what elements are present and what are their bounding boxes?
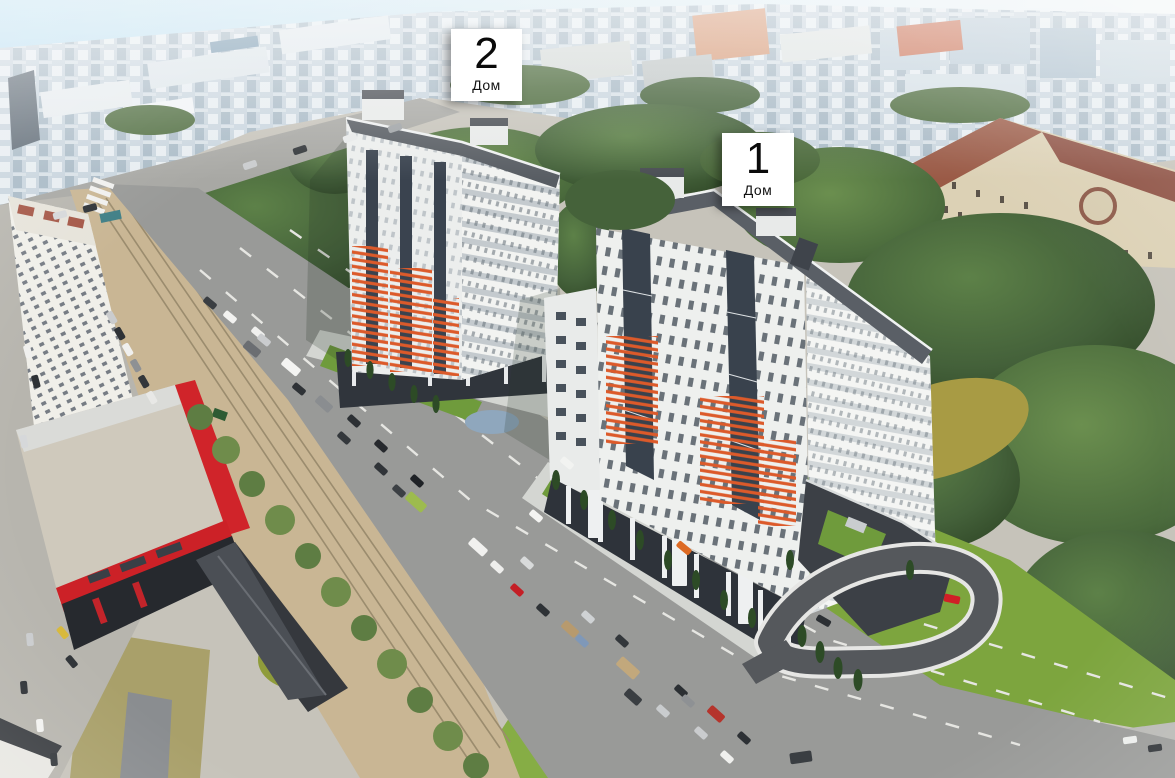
aerial-rendering: 2 Дом 1 Дом — [0, 0, 1175, 778]
building-1-caption: Дом — [744, 182, 773, 206]
building-1-label: 1 Дом — [722, 133, 794, 206]
building-2-number: 2 — [474, 29, 498, 77]
building-2-caption: Дом — [472, 77, 501, 101]
scene-canvas — [0, 0, 1175, 778]
building-1-number: 1 — [746, 133, 770, 182]
building-2-label: 2 Дом — [451, 29, 522, 101]
vignette — [0, 0, 1175, 778]
